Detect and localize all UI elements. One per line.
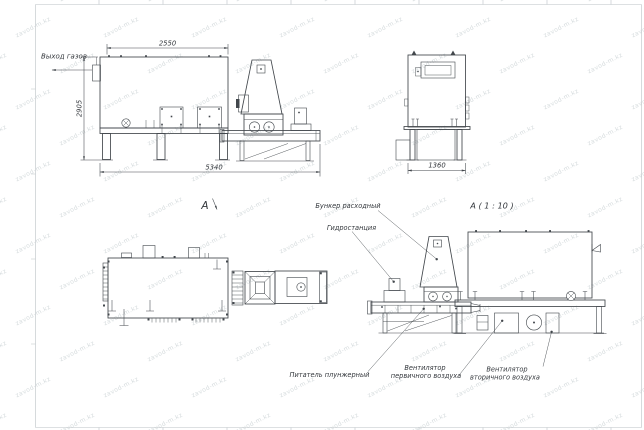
top-mark-left <box>412 51 417 56</box>
sheet-frame <box>31 0 642 430</box>
end-view: 1360 <box>396 51 470 175</box>
flag-mark-icon <box>592 245 601 253</box>
callout-fan-secondary-line1: Вентилятор <box>486 366 527 374</box>
callout-hydraulic: Гидростанция <box>327 224 376 232</box>
ash-box <box>396 140 410 160</box>
detail-view: A ( 1 : 10 ) <box>290 201 607 382</box>
dim-2905-text: 2905 <box>76 100 84 117</box>
drawing-sheet: zavod-m.kzzavod-m.kzzavod-m.kzzavod-m.kz… <box>0 0 644 430</box>
hydraulic-box-side <box>295 108 307 124</box>
callout-fan-secondary-line2: вторичного воздуха <box>470 374 540 382</box>
detail-feeder <box>368 237 481 334</box>
callout-hopper: Бункер расходный <box>315 202 381 210</box>
dim-2905: 2905 <box>76 57 99 160</box>
callout-fan-primary-line2: первичного воздуха <box>391 372 461 380</box>
feed-hopper <box>420 237 457 288</box>
gas-outlet-callout: Выход газов <box>41 53 92 71</box>
callout-fan-primary-line1: Вентилятор <box>404 364 445 372</box>
roof-box-2 <box>189 248 200 259</box>
hatch-box-1 <box>160 107 183 128</box>
furnace-body-end <box>408 55 466 127</box>
fan-primary <box>477 313 519 333</box>
dim-1360-text: 1360 <box>428 162 445 170</box>
dim-5340: 5340 <box>100 144 320 177</box>
detail-callouts: Бункер расходный Гидростанция Питатель п… <box>290 202 553 382</box>
view-a-arrow-icon <box>213 199 218 210</box>
drain-symbol <box>122 119 130 127</box>
support-marks <box>108 260 226 326</box>
fan-secondary <box>526 313 559 333</box>
view-a-label: A <box>200 200 208 212</box>
view-a-marker: A <box>200 199 217 213</box>
furnace-body-plan <box>108 258 228 318</box>
gas-outlet-label: Выход газов <box>41 53 87 61</box>
furnace-body-side <box>93 55 231 160</box>
plunger-feeder-trough <box>371 302 471 313</box>
hatch-box-2 <box>198 107 222 128</box>
detail-title: A ( 1 : 10 ) <box>469 201 513 211</box>
dim-5340-text: 5340 <box>205 164 222 172</box>
dim-2550: 2550 <box>107 40 228 55</box>
dim-2550-text: 2550 <box>159 40 176 48</box>
hatch-bolt-dots <box>161 108 220 125</box>
feeder-assembly-side <box>220 60 320 161</box>
furnace-body-detail <box>468 232 592 298</box>
detail-furnace <box>454 230 607 333</box>
plan-edge-dots <box>103 256 228 321</box>
base-platform <box>455 300 605 307</box>
technical-drawing: 2550 2905 5340 Выход газов A <box>0 0 644 430</box>
plan-feeder <box>232 271 327 305</box>
gas-outlet-duct <box>93 65 101 81</box>
callout-feeder: Питатель плунжерный <box>290 371 371 379</box>
hydraulic-station <box>389 279 400 291</box>
plan-view <box>103 246 327 326</box>
roof-box-1 <box>143 246 155 259</box>
opening-frame <box>421 62 455 78</box>
side-view: 2550 2905 5340 Выход газов A <box>41 40 320 213</box>
top-mark-right <box>451 51 456 56</box>
dim-1360: 1360 <box>408 162 466 175</box>
